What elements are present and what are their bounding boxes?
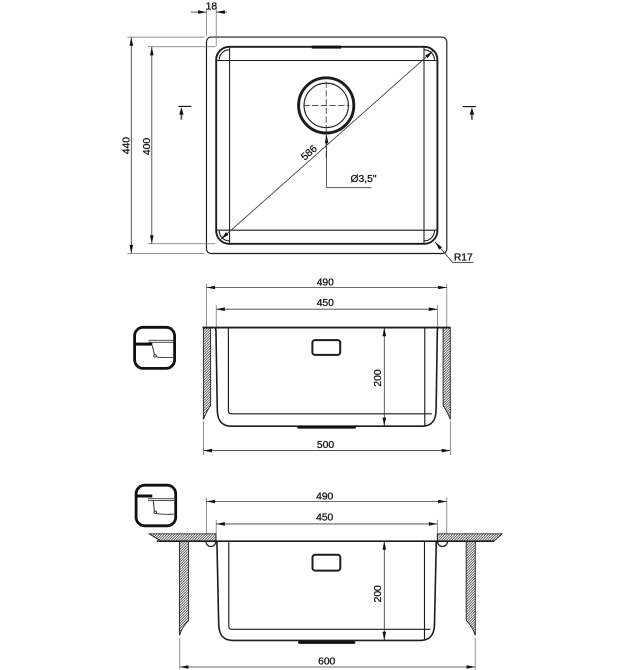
svg-text:Ø3,5": Ø3,5" <box>351 174 377 185</box>
svg-text:200: 200 <box>373 369 384 386</box>
svg-text:18: 18 <box>206 1 218 12</box>
svg-text:450: 450 <box>316 513 333 524</box>
svg-text:200: 200 <box>373 585 384 602</box>
svg-text:400: 400 <box>142 138 153 155</box>
svg-text:490: 490 <box>317 277 334 288</box>
svg-text:490: 490 <box>316 491 333 502</box>
svg-text:600: 600 <box>318 656 335 667</box>
svg-text:450: 450 <box>317 298 334 309</box>
svg-text:R17: R17 <box>454 252 473 263</box>
svg-text:440: 440 <box>122 137 133 154</box>
svg-text:500: 500 <box>317 440 334 451</box>
